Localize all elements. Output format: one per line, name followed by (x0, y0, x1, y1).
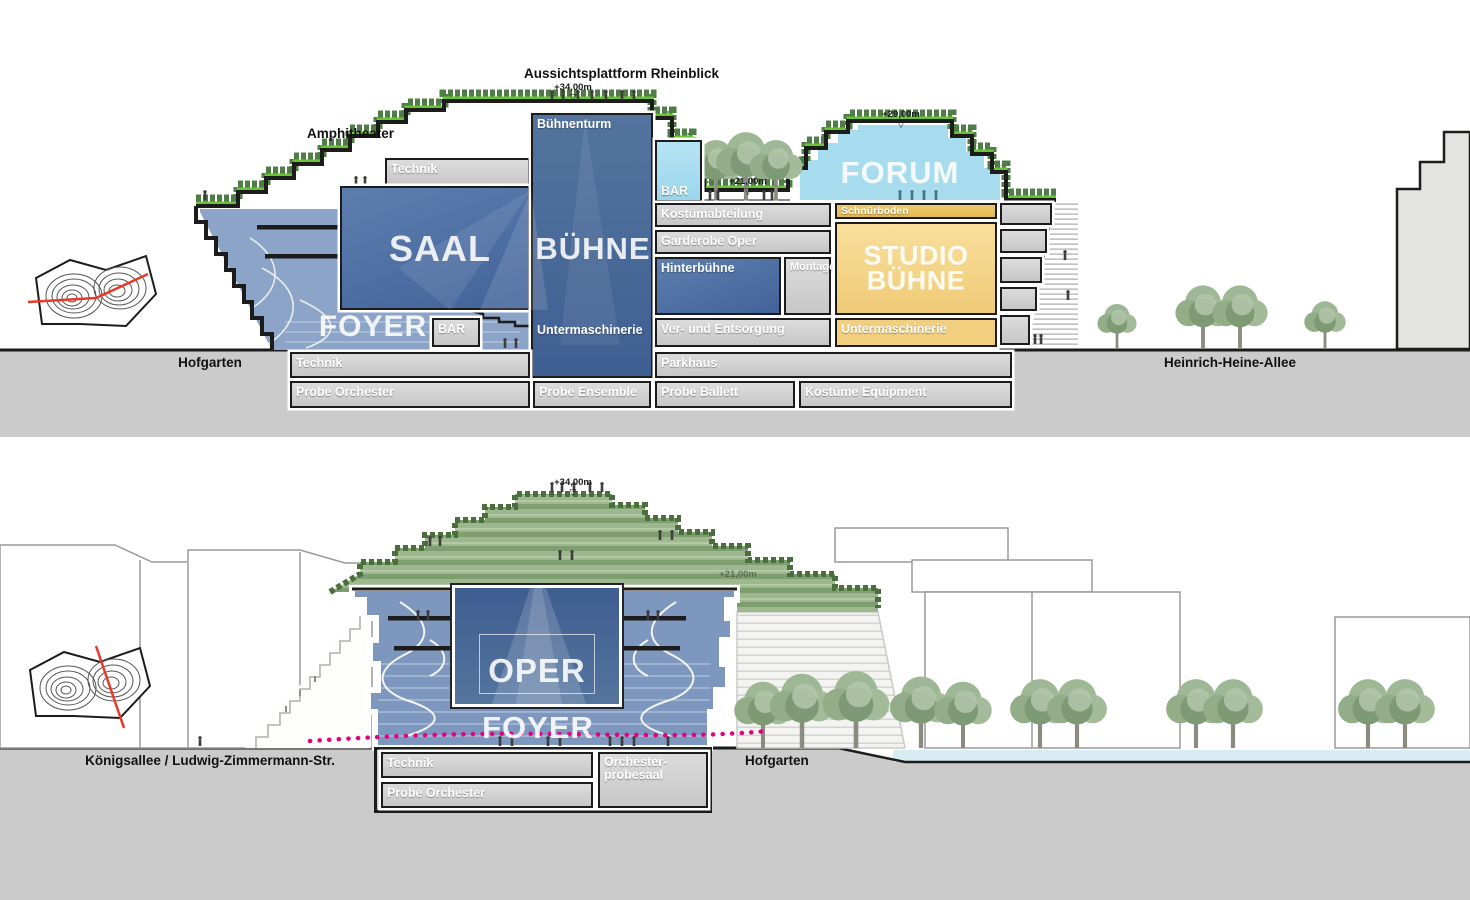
level-marker-21-top: +21,00m▽ (726, 177, 770, 196)
room-label: Orchester-probesaal (604, 756, 667, 782)
room-orchesterprobesaal: Orchester-probesaal (598, 752, 708, 808)
level-marker-21-bottom: +21,00m (716, 570, 760, 580)
level-marker-34-top: +34,00m▽ (548, 83, 598, 102)
section-cut-line (96, 646, 124, 728)
label-amphitheater: Amphitheater (307, 126, 394, 141)
section-cut-line (28, 274, 148, 302)
room-bar-foyer: BAR (432, 318, 480, 347)
background-buildings-left (0, 545, 372, 748)
room-label: Parkhaus (661, 356, 717, 370)
room-technik-bottom: Technik (381, 752, 593, 778)
room-probe-orchester-bottom: Probe Orchester (381, 782, 593, 808)
stair-landing (1000, 287, 1037, 311)
room-label: Untermaschinerie (537, 323, 643, 337)
room-technik-roof: Technik (385, 158, 530, 186)
level-marker-29: +29,00m▽ (876, 110, 926, 129)
room-kostuemabteilung: Kostümabteilung (655, 203, 831, 227)
room-label: Technik (391, 162, 437, 176)
label-hofgarten-bottom: Hofgarten (745, 753, 855, 768)
label-foyer-top: FOYER (308, 313, 438, 342)
room-schnuerboden: Schnürboden (835, 203, 997, 219)
stair-landing (1000, 315, 1030, 345)
room-label: Garderobe Oper (661, 234, 757, 248)
room-parkhaus: Parkhaus (655, 352, 1012, 378)
label-saal: SAAL (385, 232, 495, 266)
label-buehne: BÜHNE (534, 234, 652, 263)
label-forum: FORUM (820, 158, 980, 187)
label-koenigsallee: Königsallee / Ludwig-Zimmermann-Str. (60, 753, 360, 768)
room-montage: Montage (784, 257, 831, 315)
bottom-ground (0, 748, 1470, 900)
label-foyer-bottom: FOYER (468, 713, 608, 742)
background-buildings-right (835, 528, 1470, 748)
room-label: Probe Orchester (296, 385, 394, 399)
site-key-bottom (30, 646, 150, 728)
room-probe-ballett: Probe Ballett (655, 381, 795, 408)
room-label: STUDIOBÜHNE (837, 243, 995, 294)
left-step-edge (196, 206, 272, 350)
room-probe-orchester: Probe Orchester (290, 381, 530, 408)
room-label: Schnürboden (841, 205, 909, 217)
room-label: Montage (790, 261, 835, 273)
room-label: Kostüme Equipment (805, 385, 927, 399)
room-label: Ver- und Entsorgung (661, 322, 785, 336)
room-label: Probe Ballett (661, 385, 738, 399)
drawing-canvas: Technik Bühnenturm Untermaschinerie BAR … (0, 0, 1470, 900)
room-technik-keller: Technik (290, 352, 530, 378)
label-aussichtsplattform: Aussichtsplattform Rheinblick (524, 66, 719, 81)
room-label: Technik (296, 356, 342, 370)
room-probe-ensemble: Probe Ensemble (533, 381, 651, 408)
room-label: Probe Ensemble (539, 385, 637, 399)
stair-landing (1000, 203, 1052, 225)
room-label: Bühnenturm (537, 117, 611, 131)
room-bar-terrace: BAR (655, 140, 702, 202)
amphitheater-steps (256, 605, 370, 748)
room-garderobe-oper: Garderobe Oper (655, 230, 831, 254)
site-key-top (28, 256, 156, 326)
stair-landing (1000, 257, 1042, 283)
room-label: Kostümabteilung (661, 207, 763, 221)
water (893, 750, 1470, 762)
room-ver-und-entsorgung: Ver- und Entsorgung (655, 318, 831, 347)
room-label: BAR (661, 184, 688, 198)
room-hinterbuehne: Hinterbühne (655, 257, 781, 315)
label-oper: OPER (450, 655, 624, 686)
label-hofgarten-top: Hofgarten (150, 355, 270, 370)
room-label: Technik (387, 756, 433, 770)
room-label: Untermaschinerie (841, 322, 947, 336)
level-marker-34-bottom: +34,00m▽ (548, 478, 598, 497)
label-heinrich-heine-allee: Heinrich-Heine-Allee (1140, 355, 1320, 370)
room-kostueme-equipment: Kostüme Equipment (799, 381, 1012, 408)
room-label: Probe Orchester (387, 786, 485, 800)
stair-landing (1000, 229, 1047, 253)
neighbour-building (1397, 132, 1470, 349)
room-label: BAR (438, 322, 465, 336)
room-label: Hinterbühne (661, 261, 735, 275)
room-studio-buehne: STUDIOBÜHNE (835, 222, 997, 315)
right-terraces (737, 612, 905, 748)
room-untermaschinerie-studio: Untermaschinerie (835, 318, 997, 347)
